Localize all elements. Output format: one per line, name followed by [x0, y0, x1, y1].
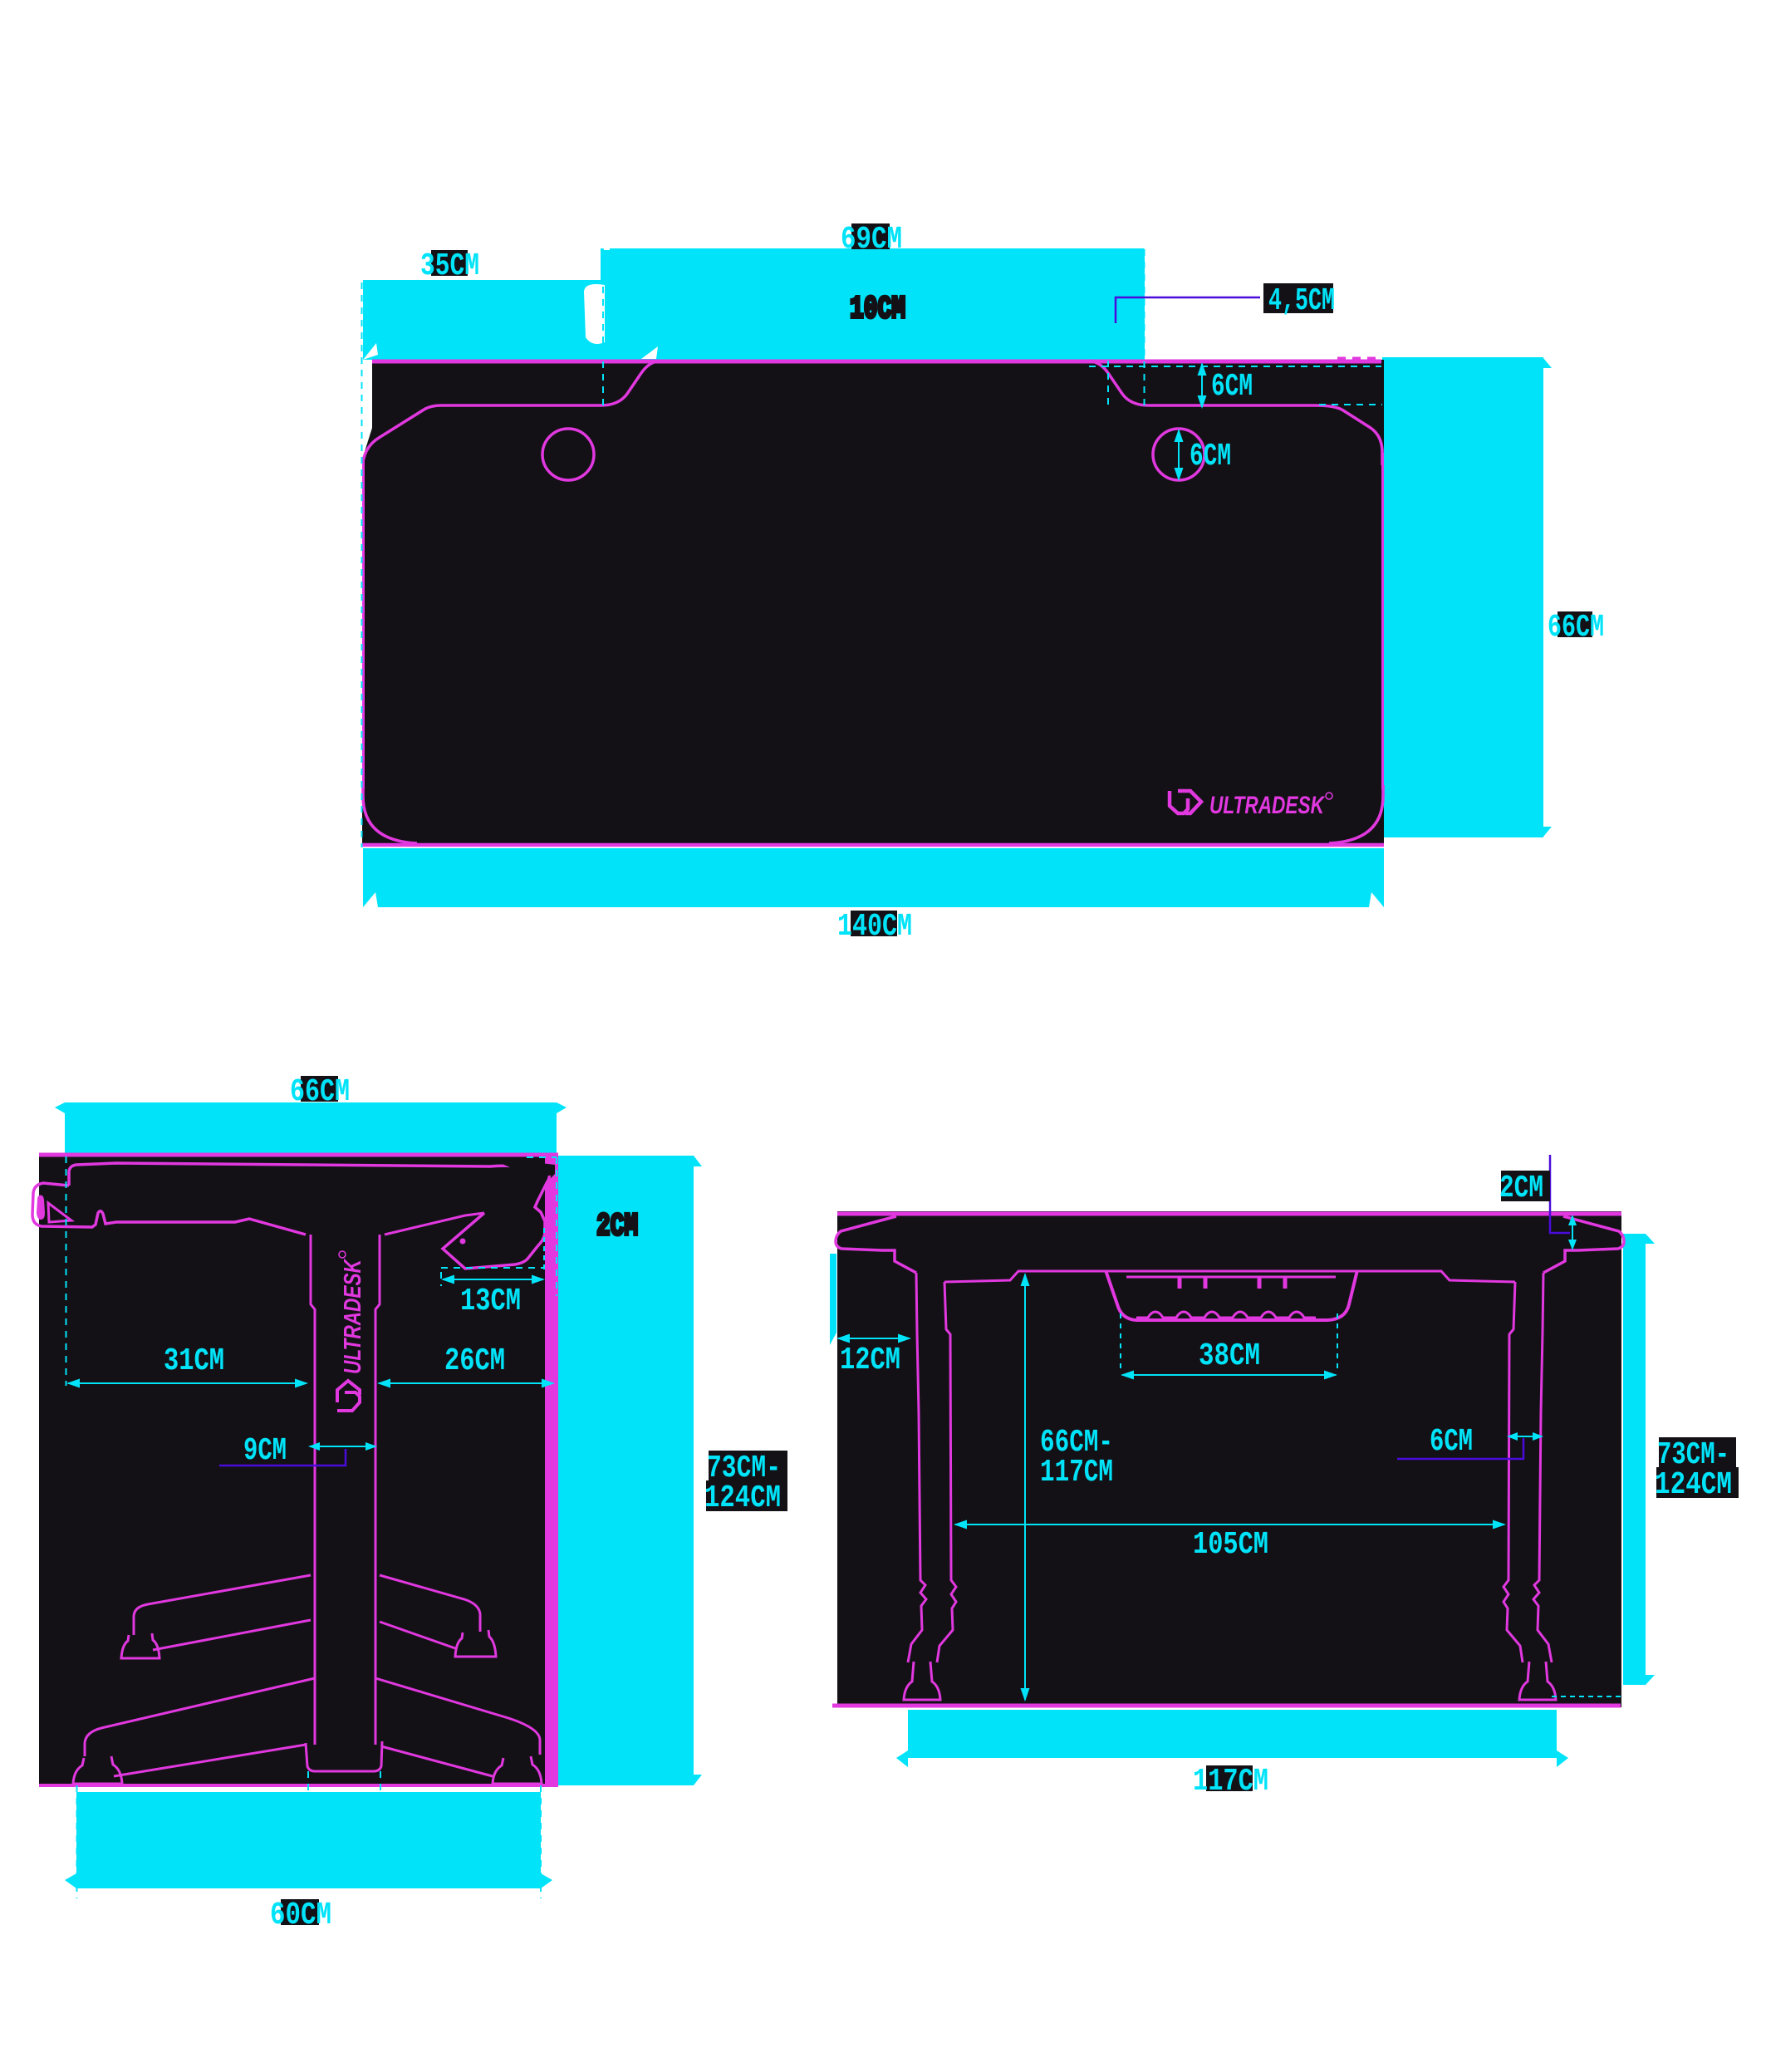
svg-text:26CM: 26CM [444, 1343, 505, 1379]
svg-text:12CM: 12CM [840, 1343, 900, 1378]
svg-text:4,5CM: 4,5CM [1268, 283, 1335, 319]
svg-text:2CM: 2CM [1499, 1171, 1543, 1206]
svg-text:6CM: 6CM [1190, 439, 1231, 474]
svg-text:117CM: 117CM [1040, 1455, 1113, 1490]
svg-text:6CM: 6CM [1430, 1424, 1473, 1460]
svg-text:124CM: 124CM [1655, 1467, 1732, 1503]
svg-text:2CM: 2CM [596, 1209, 638, 1245]
svg-text:66CM: 66CM [1548, 610, 1604, 646]
svg-text:ULTRADESK: ULTRADESK [1209, 792, 1326, 819]
svg-text:35CM: 35CM [420, 248, 479, 284]
svg-text:140CM: 140CM [837, 909, 912, 945]
svg-text:13CM: 13CM [460, 1284, 521, 1319]
svg-text:38CM: 38CM [1199, 1338, 1260, 1374]
svg-text:69CM: 69CM [841, 222, 902, 258]
svg-text:60CM: 60CM [270, 1898, 331, 1933]
svg-text:105CM: 105CM [1193, 1527, 1268, 1563]
svg-text:31CM: 31CM [164, 1343, 224, 1379]
svg-text:ULTRADESK: ULTRADESK [340, 1258, 366, 1374]
svg-text:6CM: 6CM [1211, 369, 1253, 405]
svg-text:117CM: 117CM [1193, 1764, 1268, 1799]
svg-text:9CM: 9CM [243, 1433, 287, 1469]
svg-text:66CM: 66CM [290, 1074, 350, 1110]
svg-text:10CM: 10CM [850, 292, 905, 327]
svg-text:124CM: 124CM [704, 1480, 781, 1516]
